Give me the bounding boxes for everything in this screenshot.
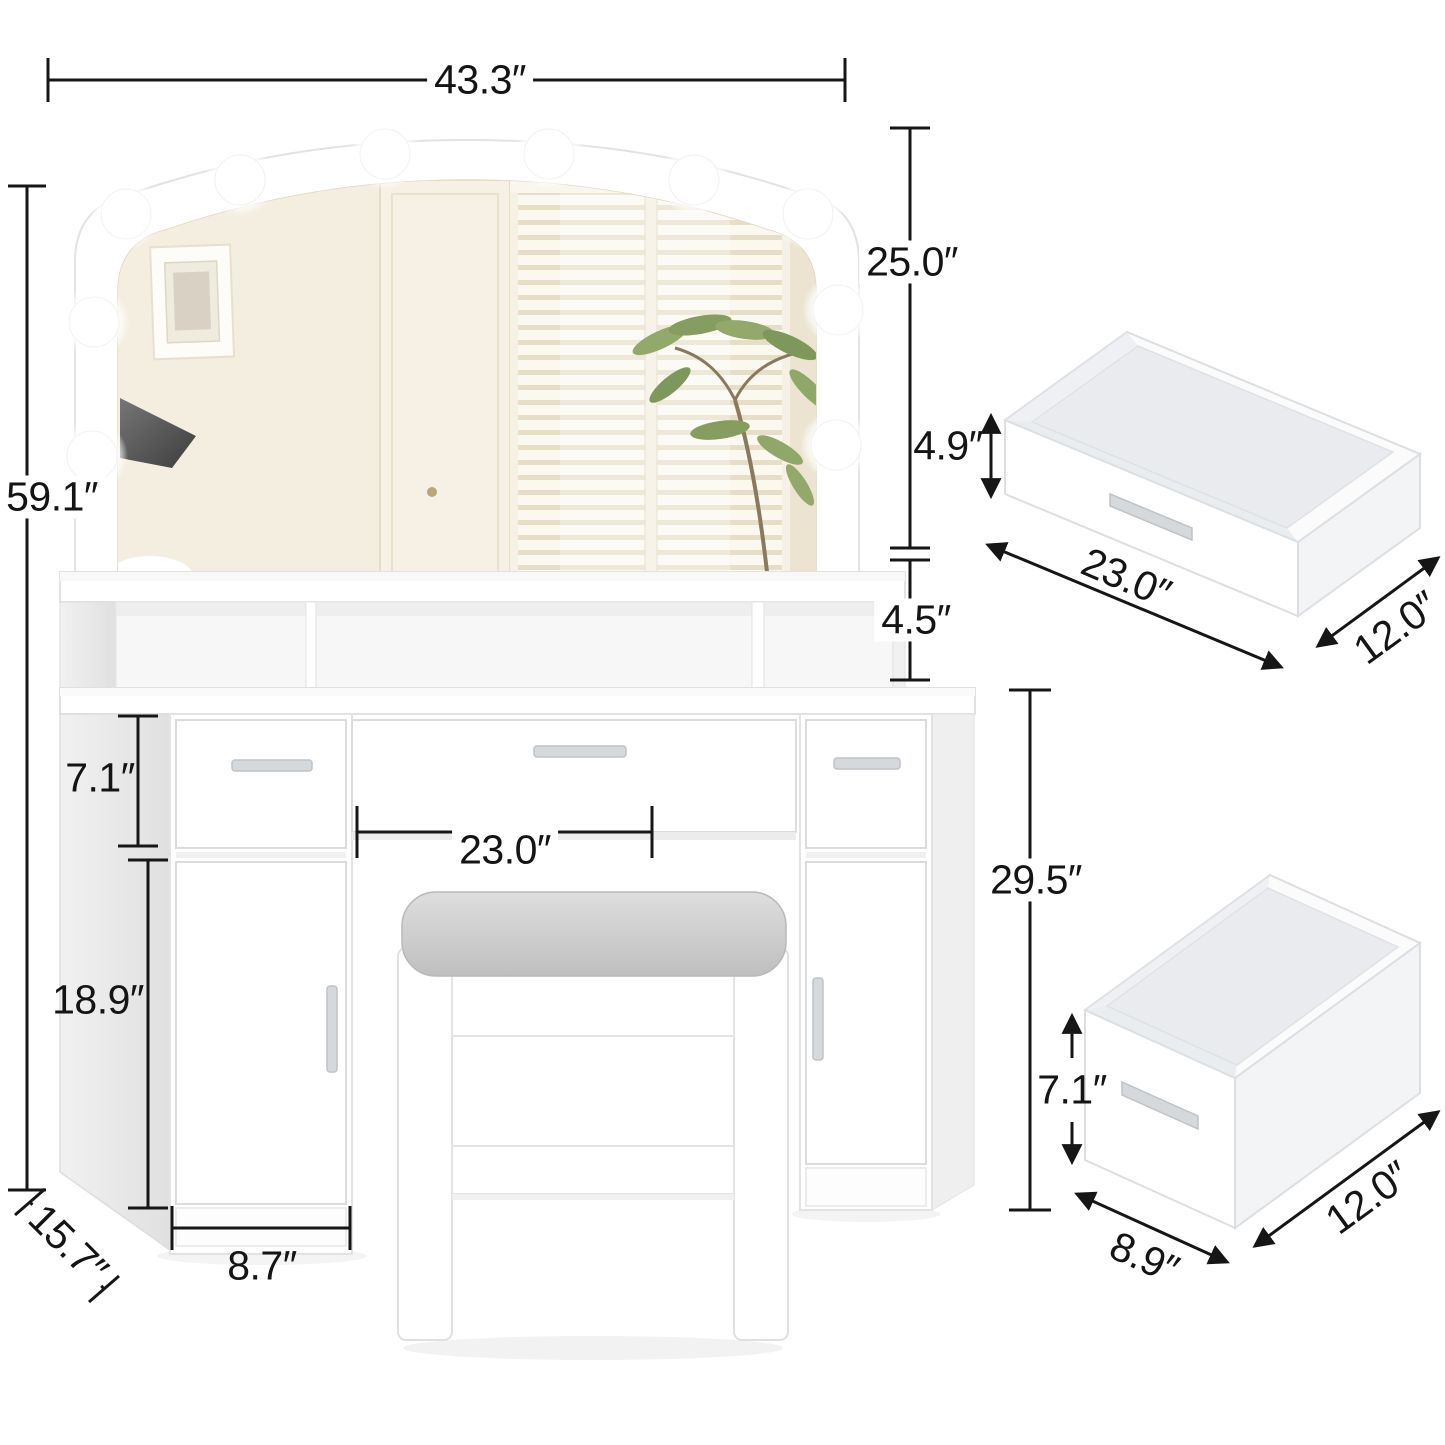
vanity-dimension-diagram: 43.3″ 59.1″ 25.0″ 4.5″ 29.5″ 7.1″ 18.9″ … [0,0,1445,1445]
dim-label-wide-drawer-height: 4.9″ [913,424,983,467]
light-bulb [349,118,421,190]
wide-drawer-3d [1005,332,1420,616]
stool-right-leg [734,948,788,1340]
desk-right-side-panel [932,714,974,1210]
stool-crossbar [452,1146,734,1194]
right-cabinet-handle [813,978,823,1060]
dim-label-drawer-height: 7.1″ [65,756,135,799]
center-drawer-front [352,720,796,832]
left-cabinet-door [176,862,346,1204]
dim-label-overall-height: 59.1″ [0,475,105,518]
dim-label-top-width: 43.3″ [427,58,533,101]
reflected-door [380,180,510,600]
right-pedestal-base [806,1168,926,1206]
right-drawer-handle [834,758,900,769]
light-bulb [90,178,162,250]
stool-cushion [402,892,786,976]
dim-label-deep-drawer-height: 7.1″ [1037,1068,1107,1111]
dim-label-knee-width: 23.0″ [452,828,558,871]
dim-label-cabinet-height: 18.9″ [52,978,144,1021]
light-bulb [772,178,844,250]
light-bulb [802,274,874,346]
diagram-scene [0,0,1445,1445]
dim-label-tabletop-height: 29.5″ [983,858,1089,901]
light-bulb [658,144,730,216]
left-drawer-handle [232,760,312,771]
hutch-left-side [60,602,116,688]
light-bulb [204,144,276,216]
cushioned-stool [398,892,788,1340]
dim-overall-height-line [8,186,46,1190]
reflected-wall [118,180,380,600]
door-knob [427,487,437,497]
dim-label-shelf-height: 4.5″ [874,598,958,641]
center-drawer-handle [534,746,626,757]
dim-tabletop-height-line [1009,690,1051,1210]
light-bulb [513,118,585,190]
right-cabinet-door [806,862,926,1164]
right-drawer-front [806,720,926,848]
dim-label-mirror-height: 25.0″ [859,240,965,283]
stool-left-leg [398,948,452,1340]
light-bulb [58,286,130,358]
reflected-picture-frame [150,245,234,360]
light-bulb [800,409,872,481]
reflected-window-blinds [510,180,790,600]
dim-mirror-height-line [890,128,930,548]
dim-label-cabinet-width: 8.7″ [227,1244,297,1287]
lighted-mirror [56,118,874,604]
left-drawer-front [176,720,346,848]
storage-shelf-hutch [60,572,905,688]
left-cabinet-handle [327,986,337,1072]
